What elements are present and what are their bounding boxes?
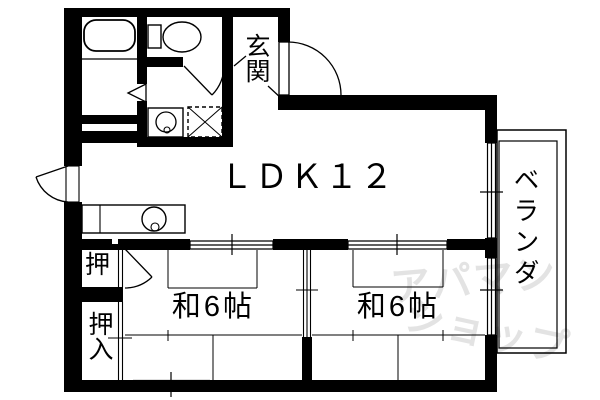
wall-bottom xyxy=(64,380,497,392)
wall-genkan-right xyxy=(278,8,290,42)
window-bottom xyxy=(133,372,210,397)
room1-door-leaf xyxy=(125,249,152,277)
slider-closet-small xyxy=(119,246,123,287)
room1-door-arc xyxy=(125,277,152,288)
kitchen-door-arc xyxy=(36,177,68,202)
toilet-bowl-icon xyxy=(163,22,201,52)
wall-bath-bar-upper xyxy=(66,115,143,124)
washer-pan-cross-icon xyxy=(188,107,222,137)
wall-room2-top-right xyxy=(447,239,485,250)
slider-room-divider xyxy=(296,250,318,337)
label-entrance: 玄関 xyxy=(243,33,268,83)
wall-right-b xyxy=(485,238,497,258)
label-room2: 和6帖 xyxy=(326,293,471,322)
label-closet-small: 押 xyxy=(85,253,110,278)
toilet-tank-icon xyxy=(148,25,161,48)
wall-room-divider-lower xyxy=(302,337,312,382)
wall-ldk-room1-left xyxy=(80,239,190,250)
wall-washroom-top xyxy=(143,57,183,67)
wall-toilet-genkan xyxy=(222,8,233,147)
front-door-leaf xyxy=(279,42,289,95)
fixtures xyxy=(82,20,222,233)
label-ldk: ＬＤＫ１２ xyxy=(210,160,405,193)
wall-right-c xyxy=(485,335,497,392)
wall-bath-toilet-upper xyxy=(137,8,147,84)
wall-notch xyxy=(112,239,118,244)
kitchen-door-line xyxy=(36,166,68,177)
wall-top xyxy=(64,8,290,17)
wall-bath-bar-lower xyxy=(66,131,143,143)
label-closet-large: 押入 xyxy=(86,311,111,361)
kitchen-door-leaf xyxy=(66,166,79,202)
label-veranda: ベランダ xyxy=(512,166,538,290)
floor-plan: アパマン ショップ xyxy=(0,0,600,400)
wall-right-a xyxy=(485,95,497,143)
front-door-arc xyxy=(288,42,341,95)
wall-washroom-bottom xyxy=(137,137,233,147)
window-ldk-room1 xyxy=(190,234,273,255)
wall-ldk-top xyxy=(278,95,497,110)
label-room1: 和6帖 xyxy=(141,293,286,322)
wall-closet-divider xyxy=(64,287,123,302)
bath-folding-door-icon xyxy=(128,84,146,102)
wall-ldk-rooms-mid xyxy=(273,239,348,250)
washroom-door-leaf xyxy=(184,66,212,95)
window-room2-top xyxy=(348,234,447,255)
bathtub-icon xyxy=(84,20,135,51)
kitchen-counter-icon xyxy=(82,205,185,233)
